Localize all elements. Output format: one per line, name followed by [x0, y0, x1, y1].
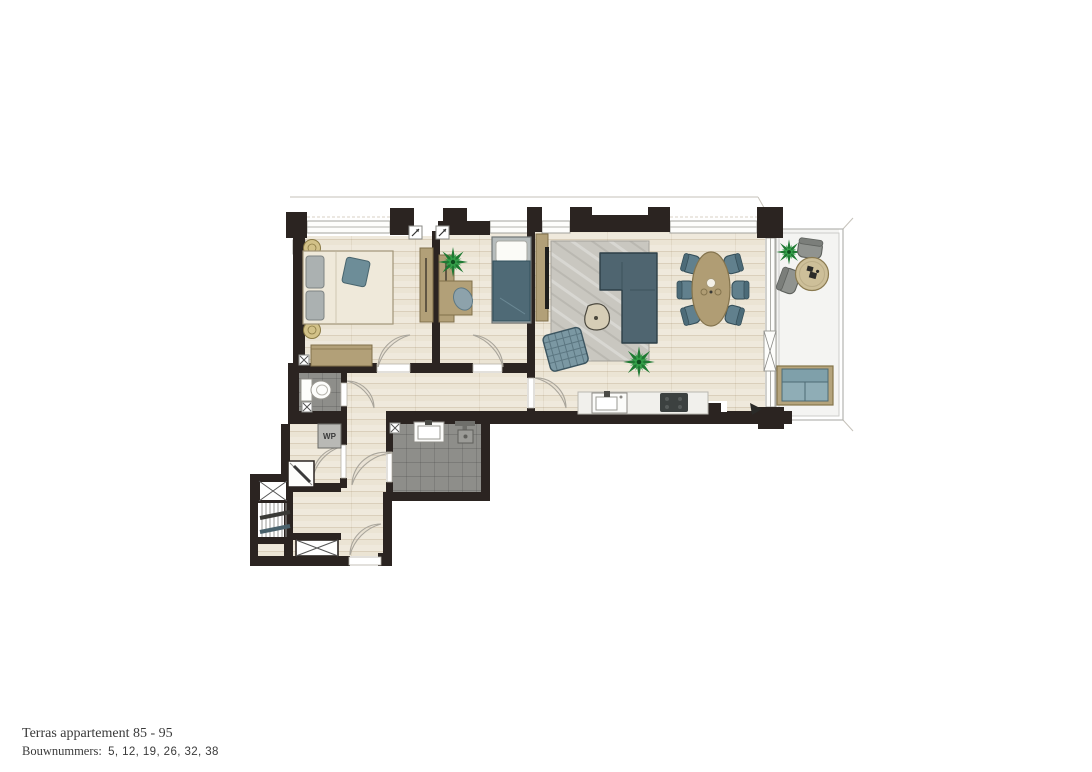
plan-subtitle: Bouwnummers: 5, 12, 19, 26, 32, 38: [22, 744, 219, 759]
dining-set: [677, 252, 749, 326]
dining-table: [692, 252, 730, 326]
extraction-valve-icon: [302, 402, 312, 412]
window-bedroom1: [307, 217, 390, 233]
window-living-terrace-upper: [766, 238, 775, 331]
duct-shaft-icon: [259, 481, 287, 501]
washing-machine: [288, 461, 314, 487]
heat-pump-unit: WP: [318, 424, 341, 448]
washbasin: [414, 420, 444, 442]
double-bed: [303, 251, 393, 324]
ventilation-icon: [409, 226, 422, 239]
ventilation-icon: [436, 226, 449, 239]
tv: [545, 247, 549, 309]
stairs-icon: [260, 503, 290, 537]
toilet: [301, 379, 331, 401]
plant: [438, 247, 468, 277]
heat-pump-label: WP: [323, 432, 337, 441]
dresser: [311, 345, 372, 366]
meter-cabinet-icon: [296, 540, 338, 556]
bouwnummers-label: Bouwnummers:: [22, 744, 102, 758]
cooktop: [660, 393, 688, 412]
floorplan-page: WP Terras appartement 85 - 95 Bouwnummer…: [0, 0, 1092, 772]
extraction-valve-icon: [299, 355, 309, 365]
kitchen: [578, 391, 708, 414]
plan-title: Terras appartement 85 - 95: [22, 726, 173, 742]
bouwnummers-values: 5, 12, 19, 26, 32, 38: [108, 746, 219, 758]
window-living-right: [670, 217, 757, 233]
terrace-chair: [797, 237, 823, 259]
window-living-left: [542, 221, 570, 233]
lower-hall-floor: [341, 411, 386, 556]
window-bedroom2: [490, 221, 528, 233]
window-living-terrace-lower: [766, 371, 775, 407]
extraction-valve-icon: [390, 423, 400, 433]
shower: [455, 421, 475, 443]
plant: [623, 346, 655, 378]
terrace-door: [764, 331, 776, 371]
floorplan-drawing: WP: [0, 0, 1092, 772]
lounge-sofa: [777, 366, 833, 405]
single-bed: [492, 237, 531, 323]
